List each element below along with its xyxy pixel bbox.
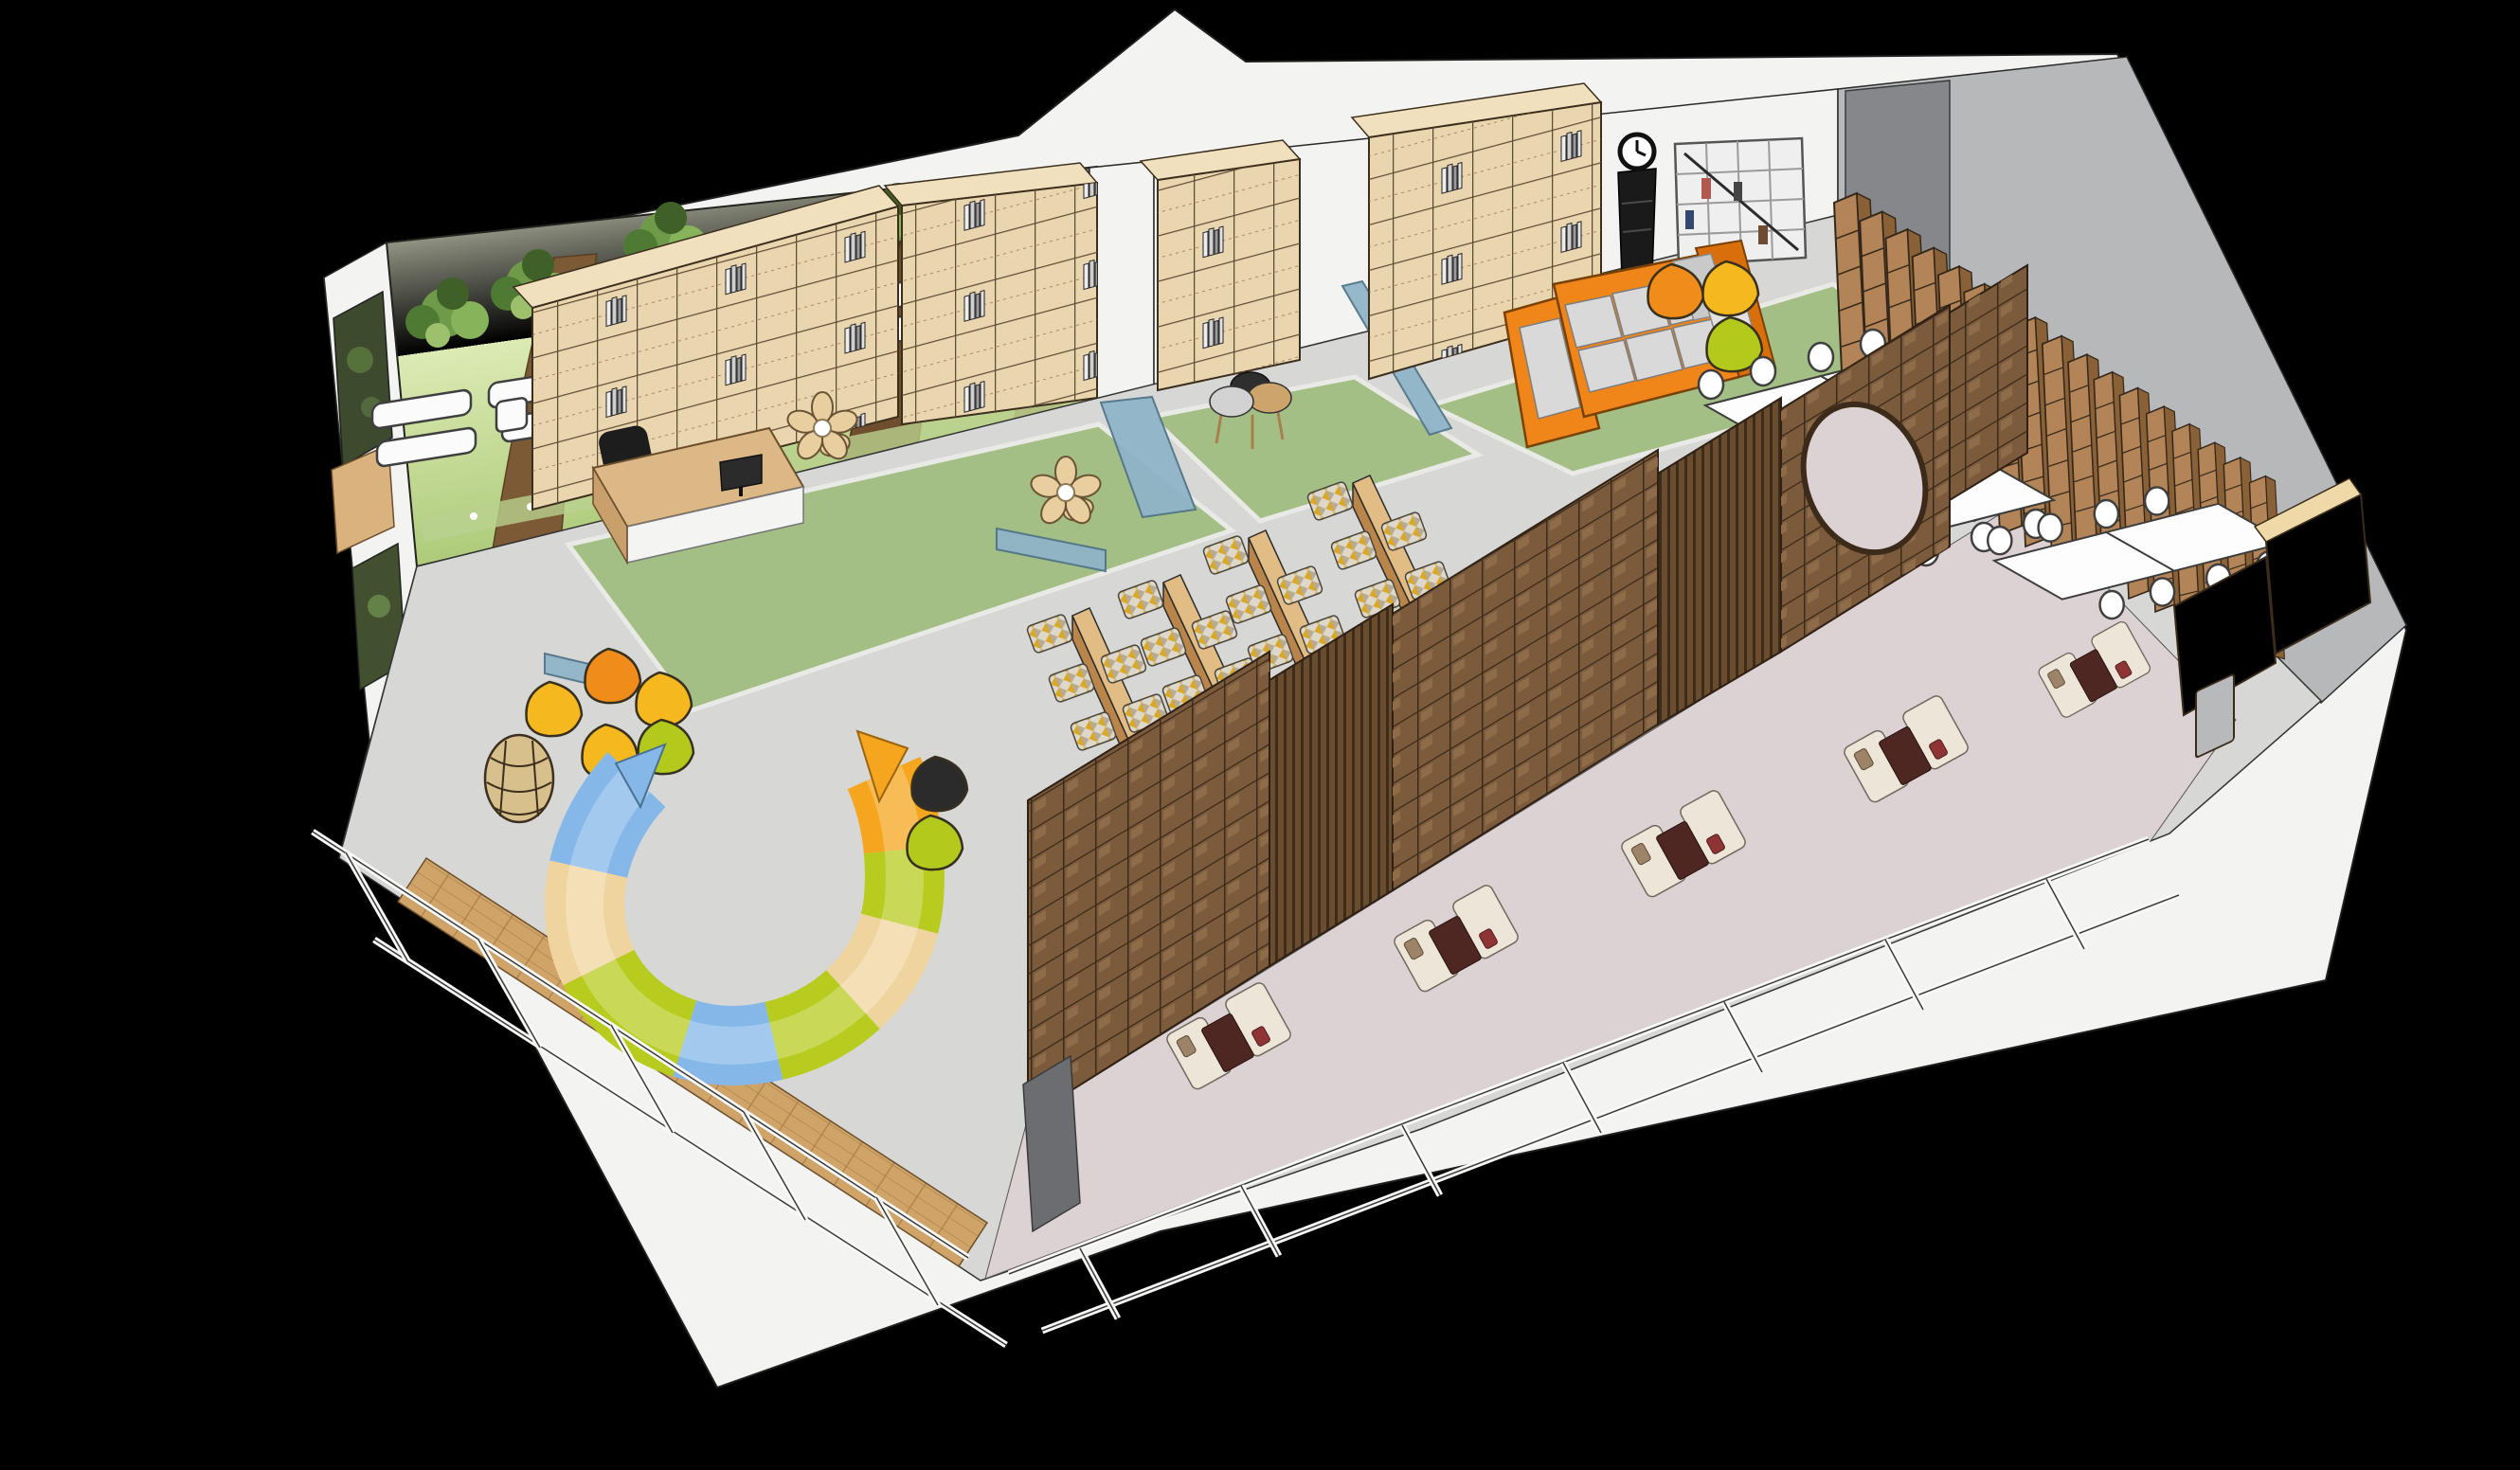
book-spine — [1685, 210, 1694, 229]
isometric-scene — [0, 0, 2520, 1470]
window-foliage — [347, 347, 373, 373]
mural-flower — [470, 512, 477, 520]
render-canvas — [0, 0, 2520, 1470]
table-top-gray — [1210, 386, 1253, 417]
book-spine — [1758, 225, 1768, 244]
window-foliage — [368, 595, 390, 618]
wall-column — [1089, 161, 1154, 407]
left-window-upper — [333, 292, 392, 466]
table-top-wood — [1248, 383, 1291, 413]
lounge-dark-panel — [1023, 1056, 1080, 1231]
bookshelf-books — [902, 183, 1097, 424]
clock-tower — [1618, 169, 1656, 278]
book-spine — [1734, 182, 1742, 201]
bookshelf-books — [1158, 159, 1300, 390]
book-spine — [1701, 178, 1711, 199]
wicker-chair — [485, 735, 553, 822]
